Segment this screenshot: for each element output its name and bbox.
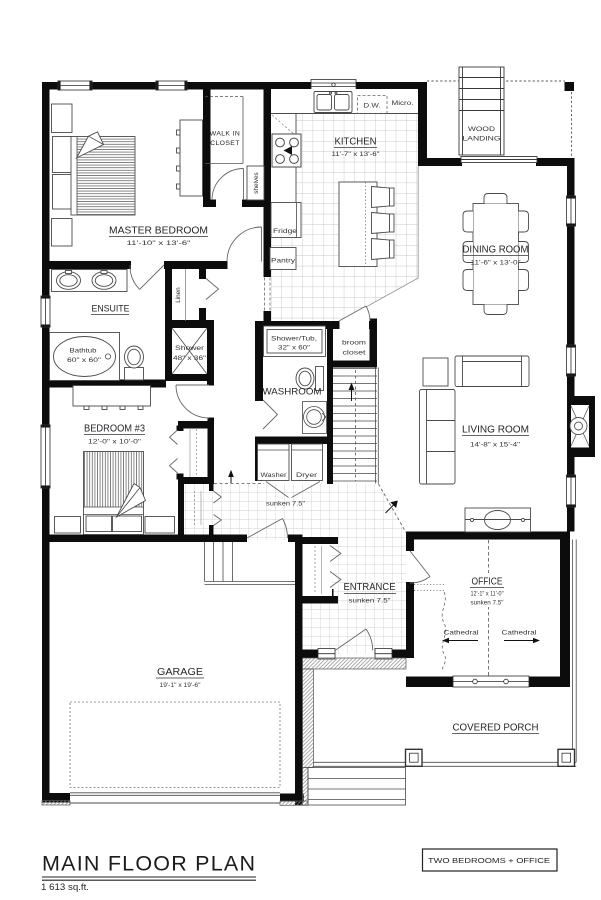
svg-text:Bathtub: Bathtub [70,348,98,355]
svg-text:Fridge: Fridge [273,228,298,235]
svg-text:LIVING ROOM: LIVING ROOM [462,425,529,436]
svg-text:Cathedral: Cathedral [502,630,537,637]
svg-text:Dryer: Dryer [296,472,317,479]
svg-text:MASTER BEDROOM: MASTER BEDROOM [109,226,208,237]
svg-text:sunken 7.5": sunken 7.5" [349,598,391,605]
svg-text:DINING ROOM: DINING ROOM [463,245,529,256]
svg-text:broom: broom [342,340,366,347]
svg-text:COVERED PORCH: COVERED PORCH [453,723,539,734]
svg-text:60" x 60": 60" x 60" [67,357,101,364]
svg-text:Shower/Tub,: Shower/Tub, [271,336,317,343]
svg-text:BEDROOM #3: BEDROOM #3 [84,424,146,435]
svg-text:sunken 7.5": sunken 7.5" [266,501,305,508]
svg-text:Micro.: Micro. [392,100,414,107]
svg-text:12'-0" x 10'-0": 12'-0" x 10'-0" [88,439,142,446]
svg-text:TWO BEDROOMS + OFFICE: TWO BEDROOMS + OFFICE [428,856,550,865]
svg-text:closet: closet [343,350,366,357]
svg-text:14'-8" x 15'-4": 14'-8" x 15'-4" [470,442,521,449]
svg-text:1 613 sq.ft.: 1 613 sq.ft. [41,882,89,892]
svg-text:MAIN FLOOR PLAN: MAIN FLOOR PLAN [42,852,255,876]
svg-text:sunken 7.5": sunken 7.5" [471,600,504,607]
svg-text:KITCHEN: KITCHEN [335,137,377,148]
svg-text:ENTRANCE: ENTRANCE [344,582,396,593]
svg-text:LANDING: LANDING [463,136,501,143]
svg-text:48" x 36": 48" x 36" [173,355,206,362]
svg-text:Linen: Linen [175,287,182,303]
svg-text:12'-1" x 11'-0": 12'-1" x 11'-0" [471,591,504,598]
svg-text:D.W.: D.W. [364,103,381,110]
svg-text:WASHROOM: WASHROOM [263,387,322,397]
svg-text:WALK IN: WALK IN [210,131,241,138]
svg-text:32" x 60": 32" x 60" [278,345,310,352]
svg-text:Shower: Shower [175,345,204,352]
svg-text:OFFICE: OFFICE [472,577,503,588]
svg-text:GARAGE: GARAGE [157,667,204,678]
svg-text:WOOD: WOOD [468,126,495,133]
svg-text:11'-10" x 13'-6": 11'-10" x 13'-6" [127,240,192,247]
svg-text:CLOSET: CLOSET [210,140,240,147]
svg-text:11'-6" x 13'-0": 11'-6" x 13'-0" [471,260,522,267]
svg-text:shelves: shelves [253,172,260,193]
svg-text:Washer: Washer [261,472,287,479]
svg-text:ENSUITE: ENSUITE [92,304,130,314]
svg-text:Pantry: Pantry [271,258,296,265]
svg-text:Cathedral: Cathedral [444,630,479,637]
svg-text:11'-7" x 13'-6": 11'-7" x 13'-6" [332,151,381,158]
svg-text:19'-1" x 19'-6": 19'-1" x 19'-6" [160,682,201,689]
